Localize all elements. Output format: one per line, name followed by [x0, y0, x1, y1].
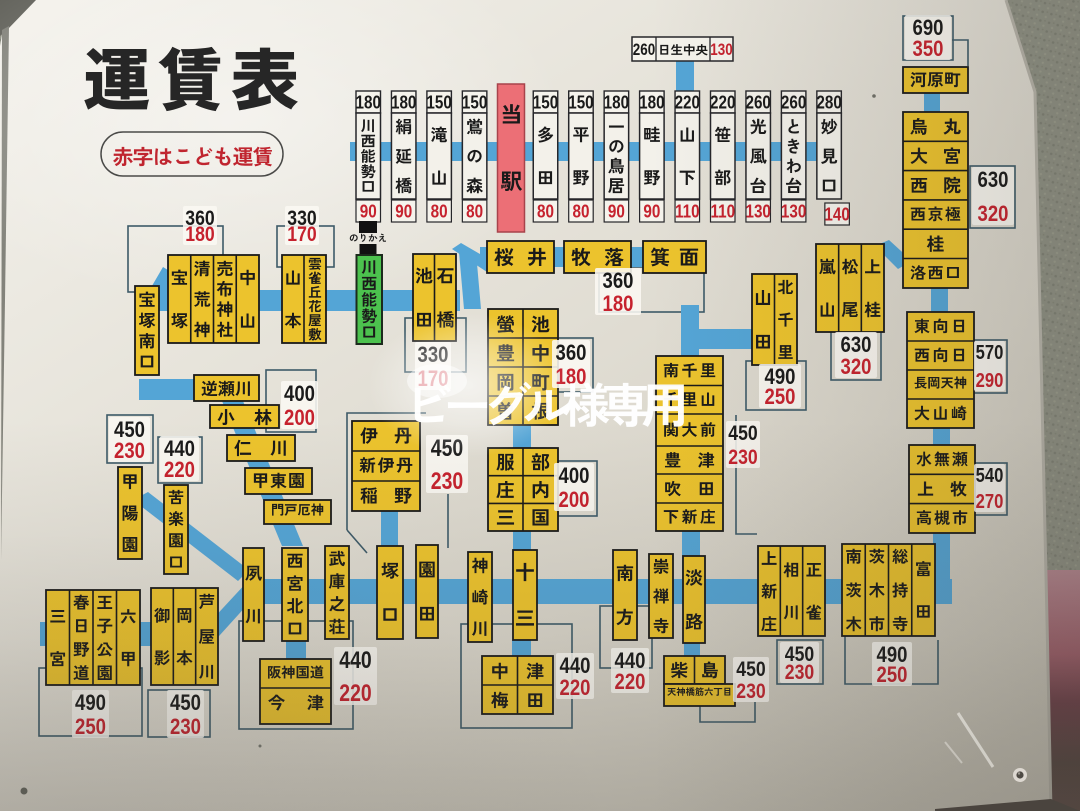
svg-text:80: 80: [572, 201, 589, 222]
svg-text:150: 150: [462, 92, 487, 113]
svg-text:150: 150: [426, 92, 451, 113]
svg-text:90: 90: [608, 201, 625, 222]
svg-text:150: 150: [533, 92, 558, 113]
svg-text:180: 180: [356, 92, 381, 113]
svg-text:180: 180: [185, 222, 214, 246]
svg-text:180: 180: [603, 291, 634, 316]
svg-text:180: 180: [604, 92, 629, 113]
svg-text:80: 80: [431, 201, 448, 222]
svg-text:360: 360: [603, 268, 634, 293]
svg-text:80: 80: [466, 201, 483, 222]
svg-text:180: 180: [391, 92, 416, 113]
svg-text:170: 170: [287, 222, 316, 246]
svg-text:90: 90: [360, 201, 377, 222]
svg-text:90: 90: [395, 201, 412, 222]
svg-text:400: 400: [284, 381, 315, 406]
svg-text:80: 80: [537, 201, 554, 222]
svg-text:150: 150: [568, 92, 593, 113]
